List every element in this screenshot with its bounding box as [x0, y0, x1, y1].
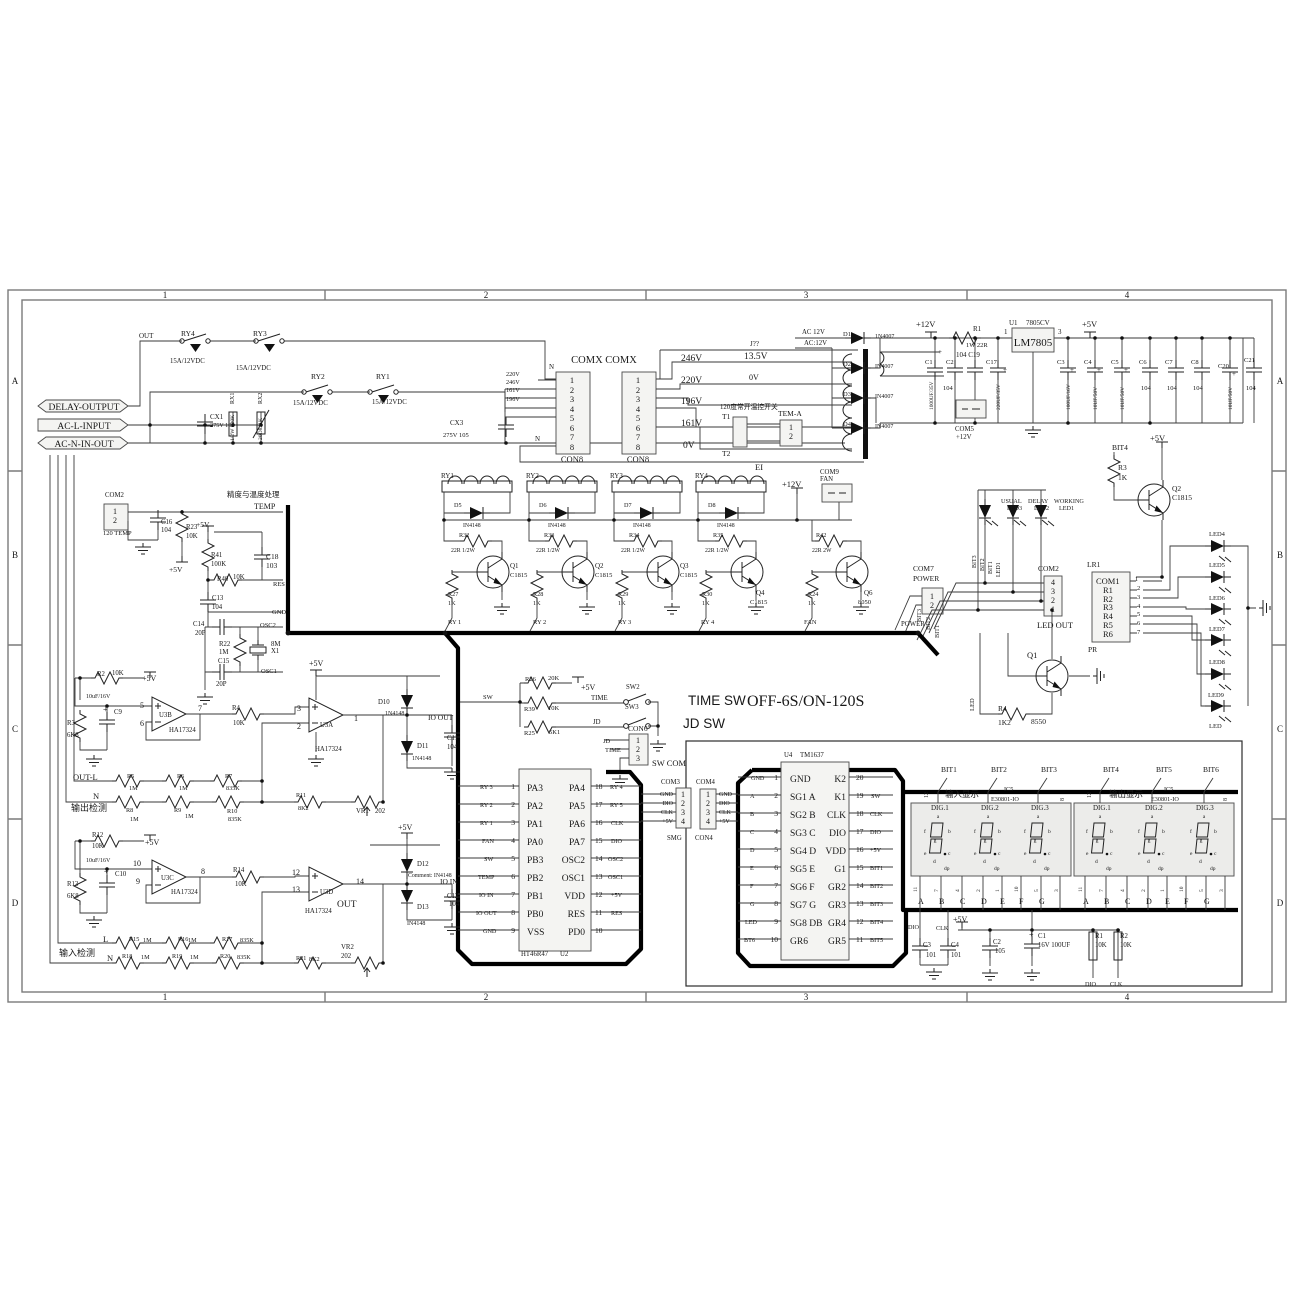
- schematic-label: D: [981, 897, 987, 906]
- schematic-label: 7805CV: [1026, 319, 1050, 327]
- schematic-label: C: [960, 897, 965, 906]
- schematic-label: d: [1033, 859, 1036, 865]
- schematic-label: 1N4148: [412, 756, 431, 762]
- schematic-label: A: [918, 897, 924, 906]
- schematic-label: C5: [1111, 359, 1119, 366]
- transistor-q2: [1138, 480, 1170, 520]
- schematic-label: G: [1204, 897, 1210, 906]
- schematic-label: HA17324: [169, 727, 196, 734]
- schematic-label: RY1: [376, 372, 390, 381]
- resistor-r13: [74, 873, 86, 905]
- schematic-label: 1K: [618, 600, 626, 607]
- schematic-label: 1M: [190, 954, 199, 961]
- diode-d5: [464, 507, 490, 519]
- schematic-label: SG7 G: [790, 901, 816, 911]
- schematic-label: R26: [525, 676, 537, 683]
- schematic-label: 4: [681, 817, 685, 826]
- schematic-label: RY4: [181, 329, 195, 338]
- schematic-label: RY 2: [533, 619, 546, 626]
- schematic-label: 1: [774, 773, 778, 782]
- schematic-label: R33: [544, 532, 554, 539]
- schematic-label: 12: [595, 890, 603, 899]
- schematic-label: RES: [273, 581, 285, 588]
- schematic-label: R39: [524, 706, 535, 713]
- driver-q3: [614, 520, 680, 631]
- schematic-label: 5: [511, 854, 515, 863]
- schematic-label: PA7: [569, 838, 585, 848]
- schematic-label: LED1: [1059, 505, 1074, 512]
- schematic-label: SW3: [625, 704, 639, 711]
- schematic-label: dp: [1106, 866, 1112, 872]
- led-led7: [1205, 634, 1231, 646]
- schematic-label: IC5: [1164, 786, 1173, 793]
- schematic-label: +5V: [169, 565, 183, 574]
- power-plus5v: [310, 670, 322, 676]
- schematic-label: C: [1125, 897, 1130, 906]
- schematic-label: C13: [212, 595, 224, 602]
- schematic-label: N: [107, 953, 113, 963]
- schematic-label: +5V: [309, 659, 324, 668]
- schematic-label: 104 C19: [956, 351, 980, 359]
- schematic-label: CLK: [1110, 981, 1123, 988]
- schematic-label: RY 4: [610, 784, 623, 791]
- schematic-label: 104: [447, 744, 458, 751]
- schematic-label: BIT1: [988, 561, 994, 574]
- schematic-label: 3: [681, 808, 685, 817]
- capacitor-c14: [212, 619, 232, 635]
- schematic-label: CX3: [450, 419, 464, 427]
- schematic-label: g: [984, 838, 987, 844]
- schematic-label: 3: [804, 992, 809, 1002]
- schematic-label: D: [750, 847, 755, 854]
- schematic-label: RY 1: [480, 820, 493, 827]
- schematic-label: PD0: [568, 928, 585, 938]
- schematic-label: VR1: [356, 808, 369, 815]
- section-output-detect: [74, 670, 460, 816]
- schematic-label: 10K: [233, 574, 245, 581]
- schematic-label: 输出显示: [1109, 789, 1143, 799]
- schematic-label: d: [1095, 859, 1098, 865]
- led-led5: [1205, 571, 1231, 583]
- schematic-label: 8: [1223, 798, 1229, 801]
- schematic-label: 3: [511, 818, 515, 827]
- driver-q1: [444, 520, 510, 631]
- schematic-label: 1: [163, 290, 168, 300]
- schematic-label: 15A/12VDC: [372, 399, 407, 406]
- schematic-label: +: [103, 705, 108, 714]
- schematic-label: 246V: [506, 379, 520, 386]
- ground: [308, 755, 324, 766]
- schematic-label: BIT3: [972, 555, 978, 568]
- schematic-label: 20P: [195, 630, 206, 637]
- potentiometer-vr2: [351, 957, 383, 977]
- schematic-label: C7: [1165, 359, 1173, 366]
- schematic-label: 1: [163, 992, 168, 1002]
- schematic-label: 10K: [235, 881, 247, 888]
- schematic-label: 20K: [548, 675, 560, 682]
- schematic-label: 4: [706, 817, 710, 826]
- schematic-label: N: [549, 363, 554, 371]
- schematic-label: C: [12, 724, 18, 734]
- schematic-label: DIG.1: [1093, 804, 1111, 812]
- schematic-label: N: [535, 435, 540, 443]
- schematic-label: OUT-L: [73, 772, 98, 782]
- schematic-label: 20P: [216, 681, 227, 688]
- schematic-label: T1: [722, 412, 731, 421]
- schematic-label: CLK: [719, 810, 732, 816]
- schematic-label: 835K: [240, 937, 254, 944]
- schematic-label: DIO: [719, 801, 730, 807]
- schematic-label: +5V: [953, 915, 968, 924]
- schematic-label: CON8: [627, 454, 649, 464]
- schematic-label: L: [103, 934, 108, 944]
- schematic-label: 10K: [548, 705, 560, 712]
- ground: [982, 969, 998, 980]
- schematic-label: 8: [636, 442, 640, 452]
- schematic-label: R15: [129, 936, 139, 943]
- schematic-label: C1: [925, 359, 933, 366]
- schematic-label: BIT1: [870, 865, 883, 872]
- schematic-label: J??: [750, 340, 759, 348]
- schematic-label: SG8 DB: [790, 919, 822, 929]
- schematic-label: f: [1086, 828, 1088, 835]
- schematic-label: BIT2: [991, 765, 1007, 774]
- schematic-label: +: [1029, 930, 1034, 939]
- schematic-label: 2: [774, 791, 778, 800]
- schematic-label: R1: [973, 325, 982, 333]
- schematic-label: RY1: [441, 472, 454, 480]
- schematic-label: DIO: [1085, 981, 1097, 988]
- schematic-label: 15: [595, 836, 603, 845]
- schematic-label: 17: [595, 800, 603, 809]
- schematic-label: C11: [447, 735, 458, 742]
- schematic-label: BIT2: [870, 883, 883, 890]
- driver-fan: [805, 520, 869, 631]
- schematic-label: R35: [713, 532, 723, 539]
- schematic-label: E: [750, 865, 754, 872]
- schematic-label: 6K8: [67, 732, 79, 739]
- schematic-label: 1K: [1118, 473, 1128, 482]
- schematic-label: 10K: [112, 670, 124, 677]
- schematic-label: COM7: [913, 564, 934, 573]
- schematic-label: DELAY-OUTPUT: [49, 403, 120, 413]
- schematic-label: b: [1048, 829, 1051, 835]
- schematic-label: dp: [944, 866, 950, 872]
- schematic-label: 1M: [143, 937, 152, 944]
- section-led-indicators: [895, 490, 1270, 722]
- schematic-label: 14: [356, 877, 364, 886]
- schematic-label: +: [1232, 370, 1236, 378]
- schematic-label: 196V: [681, 397, 702, 407]
- schematic-label: HA17324: [171, 889, 198, 896]
- driver-q2: [529, 520, 595, 631]
- schematic-label: 14: [856, 881, 864, 890]
- schematic-label: D2: [843, 361, 851, 368]
- schematic-label: R4: [232, 705, 241, 712]
- schematic-label: RY 1: [448, 619, 461, 626]
- schematic-label: PA2: [527, 802, 543, 812]
- schematic-label: R29: [618, 591, 628, 598]
- led-led6: [1205, 603, 1231, 615]
- schematic-label: D1: [843, 331, 851, 338]
- schematic-label: SG3 C: [790, 829, 816, 839]
- schematic-label: U4: [784, 752, 793, 759]
- schematic-label: 0V: [749, 373, 759, 382]
- schematic-label: 835K: [237, 954, 251, 961]
- schematic-label: AC:12V: [804, 340, 827, 347]
- schematic-label: U2: [560, 951, 569, 958]
- schematic-label: +: [1070, 366, 1074, 374]
- schematic-label: B: [1104, 897, 1109, 906]
- schematic-label: 1M: [179, 785, 188, 792]
- schematic-label: PB1: [527, 892, 544, 902]
- schematic-label: DIG.3: [1031, 804, 1049, 812]
- schematic-label: R9: [174, 807, 181, 814]
- schematic-label: 1K: [702, 600, 710, 607]
- schematic-label: 4: [1120, 889, 1126, 892]
- schematic-label: COM2: [1038, 564, 1059, 573]
- schematic-label: 1K: [533, 600, 541, 607]
- connector-com9-fan: [822, 484, 852, 502]
- capacitor-c9: [99, 712, 115, 732]
- schematic-label: dp: [1044, 866, 1050, 872]
- schematic-label: HA17324: [315, 746, 342, 753]
- schematic-label: 1: [1051, 605, 1055, 614]
- schematic-label: d: [983, 859, 986, 865]
- schematic-label: g: [1096, 838, 1099, 844]
- schematic-label: TIME SW: [688, 693, 746, 708]
- schematic-label: CON4: [695, 835, 713, 842]
- schematic-label: R5: [127, 773, 134, 780]
- schematic-label: 2: [706, 799, 710, 808]
- schematic-label: 6: [511, 872, 515, 881]
- schematic-label: 12: [1087, 792, 1093, 798]
- schematic-label: BIT5: [870, 937, 883, 944]
- schematic-label: CON8: [561, 454, 583, 464]
- schematic-label: IO OUT: [428, 713, 454, 722]
- schematic-label: IN4148: [717, 523, 735, 529]
- schematic-label: 3: [774, 809, 778, 818]
- schematic-label: 11: [595, 908, 602, 917]
- schematic-label: U3C: [161, 875, 174, 882]
- schematic-label: 输入显示: [945, 789, 979, 799]
- schematic-label: dp: [994, 866, 1000, 872]
- labels-botcaps: DIOCLK+5VC3101C4101C2105C116V 100UF+R110…: [908, 915, 1132, 988]
- schematic-label: 16: [856, 845, 864, 854]
- schematic-label: 13: [292, 885, 300, 894]
- schematic-label: R10: [227, 808, 237, 815]
- schematic-label: IN4007: [875, 424, 893, 430]
- schematic-label: 7: [511, 890, 515, 899]
- schematic-label: R18: [122, 953, 132, 960]
- schematic-label: JD: [603, 738, 611, 745]
- schematic-label: f: [1024, 828, 1026, 835]
- schematic-label: R25: [524, 730, 535, 737]
- schematic-label: SG1 A: [790, 793, 816, 803]
- schematic-label: R3: [67, 720, 76, 727]
- schematic-label: 9: [136, 877, 140, 886]
- schematic-label: 1: [681, 790, 685, 799]
- labels-bigsans: TIME SWJD SW: [683, 693, 746, 731]
- schematic-label: +5V: [398, 823, 413, 832]
- transistor-q1-8550: [1036, 656, 1068, 696]
- schematic-label: AC-L-INPUT: [57, 422, 110, 432]
- schematic-label: +: [938, 348, 942, 356]
- schematic-label: PR: [1088, 645, 1097, 654]
- schematic-label: C17: [986, 359, 998, 366]
- schematic-label: OSC1: [261, 668, 277, 675]
- schematic-label: RY3: [253, 329, 267, 338]
- schematic-label: R3: [1118, 463, 1127, 472]
- schematic-label: BIT4: [870, 919, 883, 926]
- schematic-label: A: [1083, 897, 1089, 906]
- schematic-label: EI: [755, 462, 763, 472]
- schematic-label: 1: [1004, 328, 1008, 336]
- schematic-label: 3: [1058, 328, 1062, 336]
- connector-com5: [956, 400, 986, 418]
- schematic-label: 12: [924, 792, 930, 798]
- ground: [135, 543, 151, 554]
- schematic-label: 2: [1141, 889, 1147, 892]
- schematic-label: 11: [856, 935, 863, 944]
- schematic-label: 10: [133, 859, 141, 868]
- schematic-label: 1: [706, 790, 710, 799]
- schematic-label: LED2: [1034, 505, 1049, 512]
- schematic-label: +5V: [662, 819, 673, 825]
- schematic-label: DIO: [662, 801, 673, 807]
- schematic-label: 2: [1137, 585, 1140, 592]
- schematic-label: LED8: [1209, 659, 1225, 666]
- schematic-label: C4: [951, 942, 960, 949]
- schematic-label: b: [1214, 829, 1217, 835]
- schematic-label: RY 4: [701, 619, 715, 626]
- schematic-label: E: [1165, 897, 1170, 906]
- schematic-label: 835K: [228, 816, 242, 823]
- schematic-label: R40: [217, 576, 229, 583]
- schematic-label: 10UF/50V: [1093, 387, 1099, 410]
- schematic-label: 3: [297, 704, 301, 713]
- schematic-label: f: [1138, 828, 1140, 835]
- schematic-label: B: [12, 550, 18, 560]
- schematic-label: 11: [1078, 886, 1084, 892]
- driver-q4: [698, 520, 764, 631]
- schematic-label: 1W 22R: [966, 342, 988, 349]
- schematic-label: 105: [995, 948, 1006, 955]
- schematic-label: 4: [1137, 603, 1141, 610]
- schematic-label: 835K: [226, 785, 240, 792]
- schematic-label: RY 2: [480, 802, 493, 809]
- schematic-label: USUAL: [1001, 498, 1022, 505]
- schematic-label: 1N4148: [385, 711, 404, 717]
- schematic-label: 8: [570, 442, 574, 452]
- schematic-label: CLK: [611, 820, 624, 827]
- schematic-label: LED7: [1209, 626, 1226, 633]
- schematic-label: 精度与温度处理: [227, 489, 280, 499]
- schematic-label: BIT1: [941, 765, 957, 774]
- schematic-label: 2: [297, 722, 301, 731]
- schematic-label: COM2: [105, 492, 124, 499]
- schematic-label: 4: [511, 836, 515, 845]
- schematic-label: 12: [856, 917, 864, 926]
- schematic-label: b: [1162, 829, 1165, 835]
- schematic-label: JD: [593, 719, 601, 726]
- schematic-label: 104: [1141, 385, 1152, 392]
- schematic-label: 7: [636, 432, 640, 442]
- schematic-label: LED3: [1007, 505, 1022, 512]
- schematic-label: 10K: [1095, 942, 1107, 949]
- labels-bitq2: BIT4R31K+5VQ2C1815: [1112, 433, 1192, 502]
- schematic-label: 1M: [129, 785, 138, 792]
- schematic-label: C21: [1244, 357, 1255, 364]
- schematic-label: PA5: [569, 802, 585, 812]
- schematic-label: LED: [745, 919, 758, 926]
- schematic-label: RX2: [258, 393, 264, 404]
- schematic-label: 2: [789, 432, 793, 441]
- schematic-label: GR4: [828, 919, 846, 929]
- schematic-label: C20: [1218, 363, 1229, 370]
- schematic-label: 1M: [185, 813, 194, 820]
- schematic-label: R32: [459, 532, 469, 539]
- schematic-label: LED4: [1209, 531, 1226, 538]
- section-bottom-caps: [912, 910, 1122, 980]
- ground: [1024, 969, 1040, 980]
- schematic-label: C8: [1191, 359, 1199, 366]
- schematic-label: 1000UF/35V: [929, 381, 935, 410]
- schematic-label: 120度常开温控开关: [720, 402, 778, 411]
- schematic-label: 18: [595, 782, 603, 791]
- capacitor-cx3: [498, 417, 514, 437]
- schematic-label: C1815: [1172, 493, 1192, 502]
- schematic-label: 2: [484, 290, 489, 300]
- schematic-label: d: [1147, 859, 1150, 865]
- labels-swsec: SWR2620K+5VR3910KTIMESW2SW3R255K1JDCON61…: [483, 675, 687, 768]
- diode-d6: [549, 507, 575, 519]
- schematic-label: 8050: [858, 599, 871, 606]
- schematic-label: SW: [484, 856, 493, 863]
- schematic-label: BIT2: [925, 617, 932, 630]
- schematic-label: 2: [484, 992, 489, 1002]
- diode-d13: [401, 884, 413, 910]
- schematic-label: POWER: [913, 574, 939, 583]
- schematic-label: BIT6: [1203, 765, 1219, 774]
- schematic-label: 22R 1/2W: [451, 548, 476, 554]
- schematic-label: BIT2: [980, 558, 986, 571]
- schematic-label: 1: [570, 375, 574, 385]
- schematic-label: IN4007: [875, 364, 893, 370]
- schematic-label: COMX COMX: [571, 355, 637, 366]
- labels-bigserif: OFF-6S/ON-120S: [747, 693, 864, 710]
- schematic-label: CX1: [210, 413, 224, 421]
- schematic-label: F: [750, 883, 754, 890]
- schematic-label: F: [1184, 897, 1189, 906]
- schematic-label: 7: [774, 881, 778, 890]
- ground: [197, 693, 213, 704]
- schematic-label: +5V: [142, 674, 157, 683]
- schematic-label: D6: [539, 502, 547, 509]
- schematic-label: PB2: [527, 874, 544, 884]
- schematic-label: D: [12, 898, 19, 908]
- schematic-label: 1: [995, 889, 1001, 892]
- schematic-label: SMG: [667, 835, 682, 842]
- schematic-label: LED6: [1209, 595, 1226, 602]
- schematic-label: 15A/12VDC: [170, 358, 205, 365]
- schematic-label: IO OUT: [476, 910, 497, 917]
- schematic-label: R20: [220, 953, 230, 960]
- schematic-label: SW: [483, 694, 494, 701]
- schematic-label: SG2 B: [790, 811, 816, 821]
- schematic-label: R30: [702, 591, 712, 598]
- schematic-label: C12: [447, 893, 459, 900]
